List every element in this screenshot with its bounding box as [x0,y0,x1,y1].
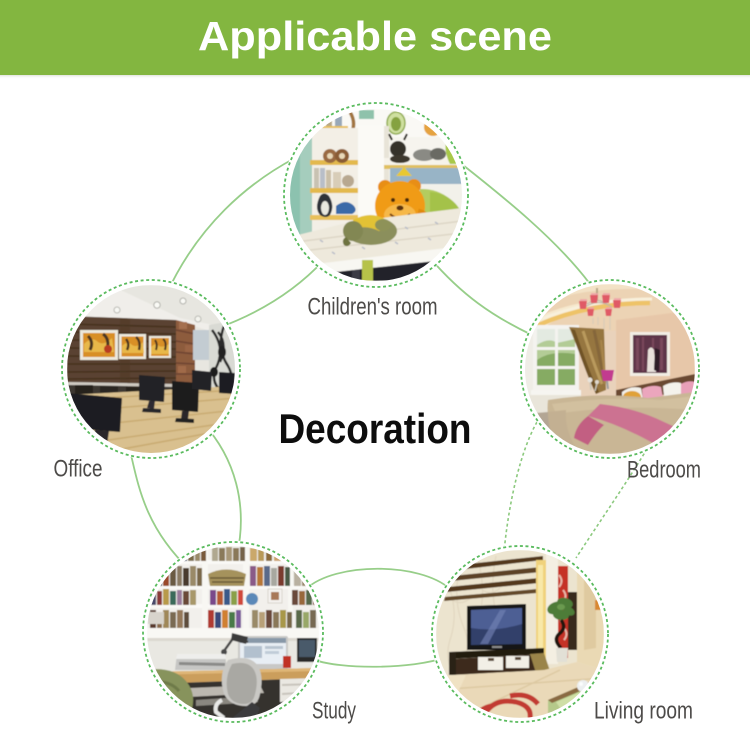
svg-text:Applicable scene: Applicable scene [198,13,552,59]
svg-text:Study: Study [312,698,356,725]
svg-text:Decoration: Decoration [279,405,472,452]
svg-text:Bedroom: Bedroom [627,457,701,484]
svg-text:Living room: Living room [594,698,693,725]
svg-text:Children's room: Children's room [308,294,438,321]
svg-text:Office: Office [54,456,103,483]
